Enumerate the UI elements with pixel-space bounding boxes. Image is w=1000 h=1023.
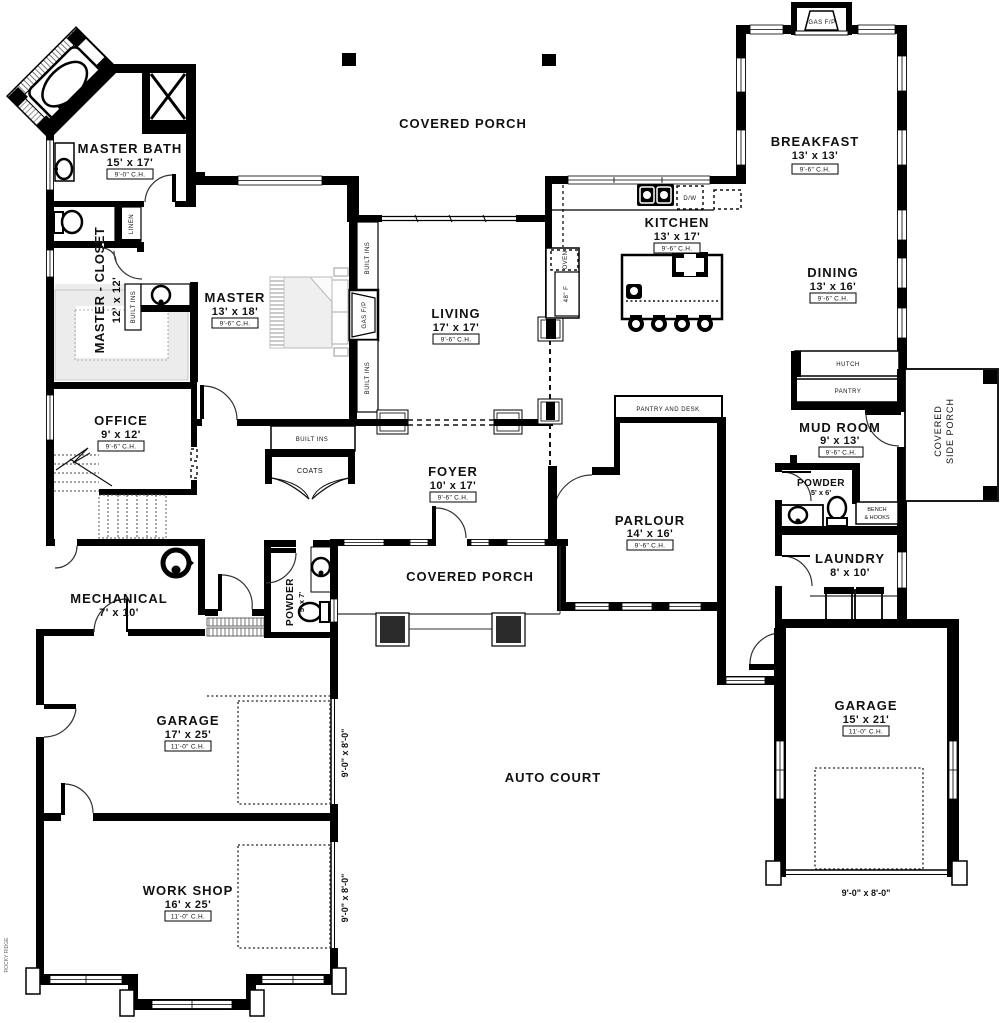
svg-text:D/W: D/W <box>683 196 696 202</box>
svg-text:COATS: COATS <box>297 468 323 475</box>
svg-text:15' x 17': 15' x 17' <box>107 157 153 169</box>
svg-text:BUILT INS: BUILT INS <box>365 242 371 275</box>
svg-text:COVERED: COVERED <box>933 405 943 457</box>
svg-text:MASTER BATH: MASTER BATH <box>78 141 183 156</box>
svg-text:MASTER: MASTER <box>205 290 266 305</box>
svg-text:9'-6" C.H.: 9'-6" C.H. <box>826 450 857 457</box>
svg-text:BENCH: BENCH <box>867 507 886 513</box>
svg-text:7' x 10': 7' x 10' <box>99 607 139 619</box>
svg-text:9' x 12': 9' x 12' <box>101 429 141 441</box>
svg-text:12' x 12': 12' x 12' <box>111 277 123 323</box>
svg-text:PARLOUR: PARLOUR <box>615 513 685 528</box>
svg-text:DINING: DINING <box>807 265 859 280</box>
svg-text:9'-6" C.H.: 9'-6" C.H. <box>106 444 137 451</box>
svg-text:11'-0" C.H.: 11'-0" C.H. <box>849 729 883 736</box>
svg-text:13' x 17': 13' x 17' <box>654 231 700 243</box>
svg-text:9' x 13': 9' x 13' <box>820 435 860 447</box>
svg-text:9'-6" C.H.: 9'-6" C.H. <box>635 543 666 550</box>
svg-text:BUILT INS: BUILT INS <box>365 362 371 395</box>
svg-text:9'-6" C.H.: 9'-6" C.H. <box>220 321 251 328</box>
svg-text:COVERED PORCH: COVERED PORCH <box>406 569 534 584</box>
svg-text:13' x 18': 13' x 18' <box>212 306 258 318</box>
svg-text:17' x 17': 17' x 17' <box>433 322 479 334</box>
svg-text:11'-0" C.H.: 11'-0" C.H. <box>171 744 205 751</box>
svg-text:GAS F/P: GAS F/P <box>362 301 368 328</box>
svg-text:9'-6" C.H.: 9'-6" C.H. <box>800 167 831 174</box>
svg-text:GARAGE: GARAGE <box>834 698 897 713</box>
svg-text:9'-0" C.H.: 9'-0" C.H. <box>115 172 146 179</box>
svg-text:SIDE PORCH: SIDE PORCH <box>945 398 955 464</box>
svg-text:LIVING: LIVING <box>431 306 480 321</box>
svg-text:AUTO COURT: AUTO COURT <box>505 770 601 785</box>
svg-text:GAS F/P: GAS F/P <box>808 20 835 26</box>
svg-text:PANTRY: PANTRY <box>835 389 862 395</box>
svg-text:POWDER: POWDER <box>285 578 296 626</box>
svg-text:14' x 16': 14' x 16' <box>627 528 673 540</box>
svg-text:ROCKY RIDGE: ROCKY RIDGE <box>4 937 10 973</box>
svg-text:LAUNDRY: LAUNDRY <box>815 551 885 566</box>
svg-text:9'-0" x 8'-0": 9'-0" x 8'-0" <box>340 874 350 923</box>
svg-text:MECHANICAL: MECHANICAL <box>70 591 167 606</box>
svg-text:WORK SHOP: WORK SHOP <box>143 883 234 898</box>
svg-text:13' x 16': 13' x 16' <box>810 281 856 293</box>
svg-text:COVERED PORCH: COVERED PORCH <box>399 116 527 131</box>
svg-text:9'-6" C.H.: 9'-6" C.H. <box>441 337 472 344</box>
svg-text:13' x 13': 13' x 13' <box>792 150 838 162</box>
svg-text:15' x 21': 15' x 21' <box>843 714 889 726</box>
svg-text:16' x 25': 16' x 25' <box>165 899 211 911</box>
svg-text:10' x 17': 10' x 17' <box>430 480 476 492</box>
svg-text:48" F: 48" F <box>564 286 570 303</box>
svg-text:11'-0" C.H.: 11'-0" C.H. <box>171 914 205 921</box>
svg-text:9'-6" C.H.: 9'-6" C.H. <box>438 495 469 502</box>
svg-text:9'-0" x 8'-0": 9'-0" x 8'-0" <box>340 729 350 778</box>
svg-text:5' x 7': 5' x 7' <box>297 592 306 612</box>
svg-text:9'-6" C.H.: 9'-6" C.H. <box>818 296 849 303</box>
svg-text:FOYER: FOYER <box>428 464 478 479</box>
svg-text:MASTER - CLOSET: MASTER - CLOSET <box>92 227 107 354</box>
svg-text:BUILT INS: BUILT INS <box>131 291 137 324</box>
svg-text:8' x 10': 8' x 10' <box>830 567 870 579</box>
svg-text:LINEN: LINEN <box>129 214 135 234</box>
svg-text:MUD ROOM: MUD ROOM <box>799 420 881 435</box>
svg-text:GARAGE: GARAGE <box>156 713 219 728</box>
svg-text:HUTCH: HUTCH <box>836 362 860 368</box>
svg-text:KITCHEN: KITCHEN <box>645 215 710 230</box>
svg-text:17' x 25': 17' x 25' <box>165 729 211 741</box>
svg-text:BREAKFAST: BREAKFAST <box>771 134 859 149</box>
svg-text:BUILT INS: BUILT INS <box>296 437 329 443</box>
svg-text:9'-6" C.H.: 9'-6" C.H. <box>662 246 693 253</box>
svg-text:OVEN: OVEN <box>563 250 569 269</box>
svg-text:& HOOKS: & HOOKS <box>864 515 889 521</box>
svg-text:5' x 6': 5' x 6' <box>811 488 831 497</box>
svg-text:OFFICE: OFFICE <box>94 413 148 428</box>
svg-text:9'-0" x 8'-0": 9'-0" x 8'-0" <box>842 888 891 898</box>
svg-text:PANTRY AND DESK: PANTRY AND DESK <box>636 407 699 413</box>
